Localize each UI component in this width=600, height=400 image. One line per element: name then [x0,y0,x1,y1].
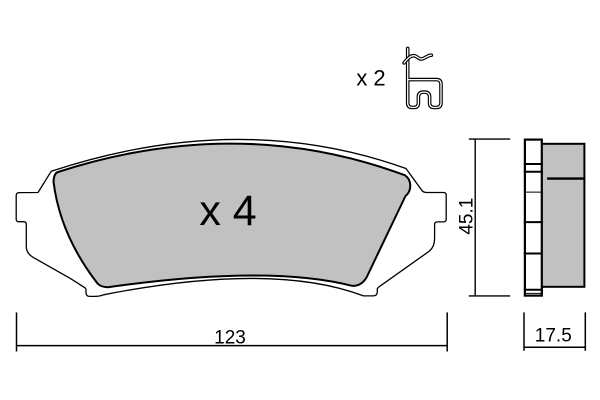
svg-text:45.1: 45.1 [457,198,478,235]
svg-text:17.5: 17.5 [535,325,572,346]
svg-text:123: 123 [214,327,246,348]
svg-text:x 2: x 2 [356,65,385,90]
svg-text:x 4: x 4 [199,187,256,235]
